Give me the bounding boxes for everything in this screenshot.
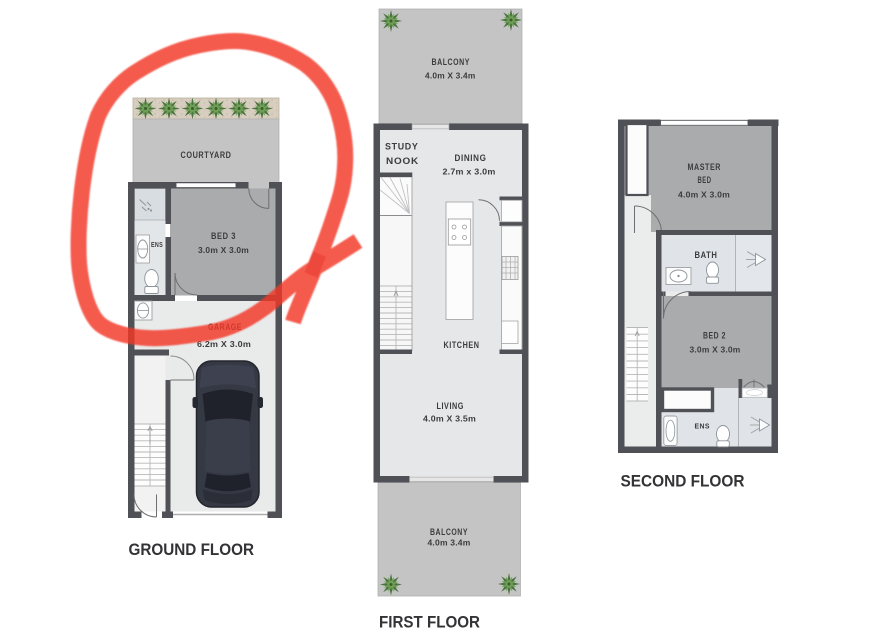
svg-text:NOOK: NOOK — [386, 156, 419, 166]
svg-text:COURTYARD: COURTYARD — [181, 150, 232, 160]
svg-text:4.0m 3.4m: 4.0m 3.4m — [428, 538, 471, 548]
svg-text:4.0m X 3.0m: 4.0m X 3.0m — [678, 189, 730, 199]
svg-text:FIRST FLOOR: FIRST FLOOR — [379, 614, 480, 632]
svg-text:MASTER: MASTER — [688, 162, 722, 172]
svg-text:3.0m X 3.0m: 3.0m X 3.0m — [690, 344, 741, 354]
svg-text:BED: BED — [698, 175, 712, 185]
svg-text:SECOND FLOOR: SECOND FLOOR — [621, 473, 745, 491]
svg-text:LIVING: LIVING — [437, 401, 465, 411]
svg-text:4.0m X 3.4m: 4.0m X 3.4m — [425, 71, 476, 81]
svg-text:BED 2: BED 2 — [703, 331, 726, 341]
svg-text:ENS: ENS — [695, 421, 710, 430]
svg-text:KITCHEN: KITCHEN — [444, 340, 480, 350]
svg-text:4.0m X 3.5m: 4.0m X 3.5m — [423, 414, 476, 424]
svg-text:BED 3: BED 3 — [211, 231, 236, 241]
svg-text:ENS: ENS — [151, 240, 163, 249]
svg-text:DINING: DINING — [455, 153, 487, 163]
svg-text:2.7m x 3.0m: 2.7m x 3.0m — [443, 167, 496, 177]
svg-text:3.0m X 3.0m: 3.0m X 3.0m — [198, 245, 249, 255]
svg-text:BALCONY: BALCONY — [432, 57, 471, 67]
svg-text:STUDY: STUDY — [385, 142, 419, 152]
svg-text:BALCONY: BALCONY — [430, 527, 468, 537]
svg-text:GROUND FLOOR: GROUND FLOOR — [129, 541, 255, 559]
svg-text:BATH: BATH — [695, 250, 718, 260]
